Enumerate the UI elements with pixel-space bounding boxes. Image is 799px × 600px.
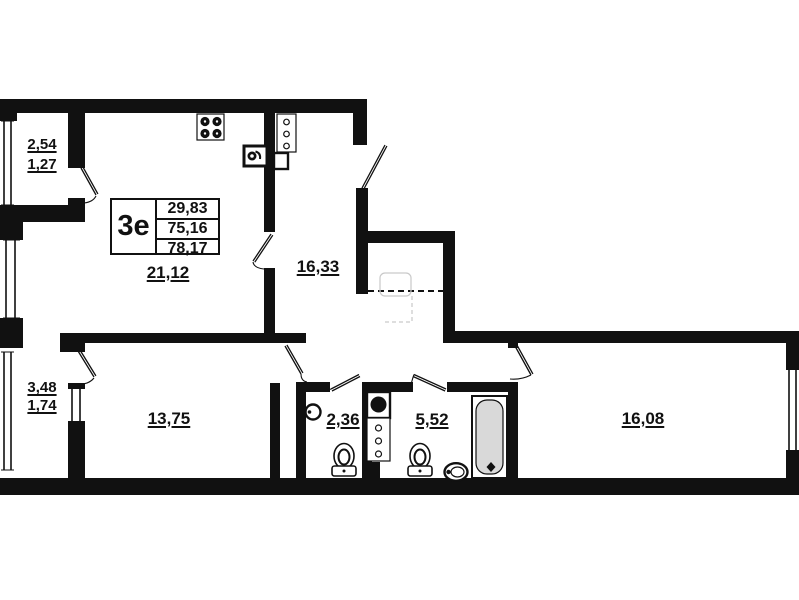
door-balcony-top-left [81,167,98,203]
room-area-label-bedroom-right: 16,08 [611,410,675,428]
area-value-3: 78,17 [157,240,218,258]
vent-box-icon [274,153,288,169]
round-sink-icon [306,405,321,420]
window-kitchen-living [3,240,20,318]
window-bedroom-right [789,370,796,450]
room-area-label-bedroom-left: 13,75 [138,410,200,428]
room-area-label-wc: 2,36 [321,411,365,429]
door-entrance [362,145,387,189]
door-bathroom [411,375,447,392]
toilet-icon [408,444,432,477]
room-area-label-bathroom: 5,52 [410,411,454,429]
toilet-icon [332,444,356,477]
window-bedroom-left [72,389,80,421]
door-bedroom-left [285,345,307,382]
room-area-label-hallway: 16,33 [288,258,348,276]
stove-icon [197,114,224,140]
window-balcony-top-left [1,121,14,205]
floor-plan-svg [0,0,799,600]
apartment-area-table: 3е 29,83 75,16 78,17 [110,198,220,255]
apartment-type-label: 3е [112,200,157,253]
walls [0,99,799,495]
door-kitchen-hall [253,234,273,269]
kitchen-sink-icon [244,146,267,166]
oval-sink-icon [445,463,468,481]
door-balcony-mid-left [78,350,96,384]
shaft-column-icon [367,418,390,461]
area-value-2: 75,16 [157,220,218,240]
floor-plan: 3е 29,83 75,16 78,17 21,12 16,33 13,75 2… [0,0,799,600]
wardrobe-ghost [380,273,412,322]
area-value-1: 29,83 [157,200,218,220]
balcony-mid-left-full-area: 3,48 [22,380,62,396]
window-balcony-mid-left [1,352,14,470]
door-bedroom-right [510,345,533,379]
balcony-top-left-reduced-area: 1,27 [22,157,62,173]
apartment-area-values: 29,83 75,16 78,17 [157,200,218,253]
bathtub-icon [472,396,507,478]
shaft-sink-icon [367,392,390,418]
duct-column-icon [277,114,296,152]
room-area-label-kitchen-living: 21,12 [138,264,198,282]
balcony-top-left-full-area: 2,54 [22,137,62,153]
balcony-mid-left-reduced-area: 1,74 [22,398,62,414]
